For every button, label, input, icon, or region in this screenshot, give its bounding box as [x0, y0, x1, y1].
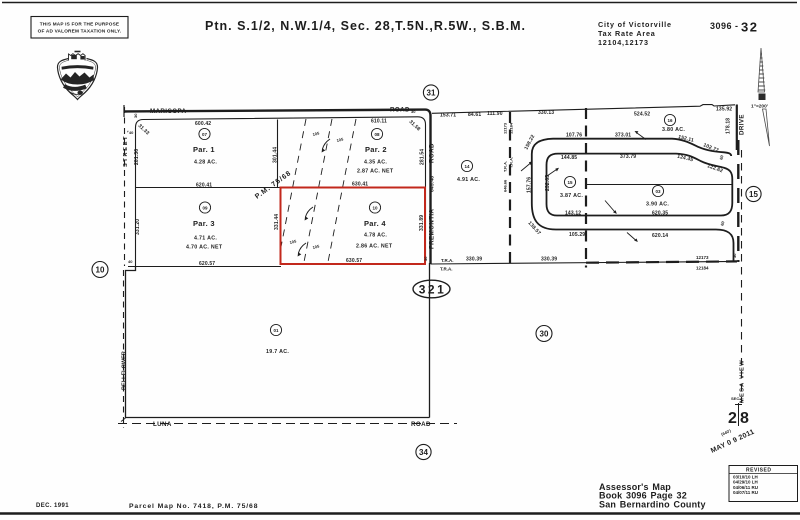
svg-text:111.90: 111.90 — [487, 111, 503, 117]
svg-text:524.52: 524.52 — [634, 112, 650, 118]
svg-text:630.57: 630.57 — [346, 258, 362, 264]
svg-text:32: 32 — [741, 20, 758, 35]
svg-text:STREET: STREET — [123, 135, 129, 167]
svg-text:15: 15 — [749, 190, 758, 199]
svg-text:620.35: 620.35 — [652, 210, 668, 216]
svg-text:31.58: 31.58 — [408, 119, 422, 132]
svg-text:102.77: 102.77 — [702, 142, 719, 154]
svg-text:07: 07 — [202, 132, 208, 137]
svg-text:16: 16 — [667, 118, 673, 123]
svg-text:4.70 AC. NET: 4.70 AC. NET — [186, 245, 223, 251]
svg-text:122.62: 122.62 — [706, 163, 723, 174]
svg-text:646.66: 646.66 — [503, 179, 508, 192]
svg-text:178.18: 178.18 — [726, 118, 732, 134]
svg-text:4.28 AC.: 4.28 AC. — [194, 160, 217, 166]
svg-text:09: 09 — [202, 206, 208, 211]
svg-text:(640'): (640') — [720, 428, 732, 437]
svg-text:Par. 3: Par. 3 — [193, 219, 215, 228]
svg-text:331.89: 331.89 — [419, 215, 425, 231]
svg-text:THIS MAP IS FOR THE PURPOSE: THIS MAP IS FOR THE PURPOSE — [40, 22, 120, 27]
svg-text:144.85: 144.85 — [561, 155, 577, 161]
svg-text:34: 34 — [419, 448, 428, 457]
svg-text:⌜40: ⌜40 — [127, 130, 134, 135]
svg-text:12184: 12184 — [696, 266, 709, 271]
svg-text:04/07/11 RU: 04/07/11 RU — [733, 490, 758, 495]
svg-text:REVISED: REVISED — [746, 468, 771, 474]
svg-text:T.R.A.: T.R.A. — [441, 258, 454, 263]
svg-text:331.20: 331.20 — [135, 219, 141, 235]
svg-text:105: 105 — [289, 238, 297, 245]
svg-text:MAY 0 9 2011: MAY 0 9 2011 — [710, 429, 756, 455]
svg-text:143.12: 143.12 — [565, 210, 581, 216]
svg-text:2.86 AC. NET: 2.86 AC. NET — [356, 244, 393, 250]
svg-text:105.29: 105.29 — [569, 232, 585, 238]
svg-text:LUNA: LUNA — [153, 421, 172, 428]
svg-text:Ptn. S.1/2, N.W.1/4, Sec. 28,T: Ptn. S.1/2, N.W.1/4, Sec. 28,T.5N.,R.5W.… — [205, 19, 526, 33]
svg-text:14: 14 — [464, 164, 470, 169]
svg-text:157.76: 157.76 — [527, 177, 533, 193]
svg-text:107.76: 107.76 — [566, 133, 582, 139]
svg-text:60: 60 — [719, 220, 725, 226]
svg-text:30: 30 — [411, 109, 416, 114]
svg-text:BELLFLOWER: BELLFLOWER — [122, 351, 128, 390]
svg-text:15: 15 — [567, 180, 573, 185]
svg-text:60: 60 — [718, 154, 724, 160]
svg-text:19.7 AC.: 19.7 AC. — [266, 349, 289, 355]
svg-text:30: 30 — [423, 256, 428, 261]
svg-text:331.44: 331.44 — [274, 214, 280, 230]
svg-text:4.91 AC.: 4.91 AC. — [457, 177, 480, 183]
svg-text:4.35 AC.: 4.35 AC. — [364, 160, 387, 166]
svg-text:01: 01 — [273, 328, 279, 333]
svg-text:DRIVE: DRIVE — [739, 114, 746, 135]
svg-text:373.79: 373.79 — [620, 154, 636, 160]
svg-text:30: 30 — [732, 253, 737, 258]
svg-text:T.R.A.: T.R.A. — [440, 267, 453, 272]
svg-text:T.R.A.: T.R.A. — [503, 161, 508, 172]
svg-text:ROAD: ROAD — [411, 421, 431, 428]
svg-text:3.87 AC.: 3.87 AC. — [560, 193, 583, 199]
svg-text:31.33: 31.33 — [137, 123, 151, 136]
svg-text:8: 8 — [740, 410, 749, 427]
svg-text:105: 105 — [312, 243, 320, 250]
svg-text:FREMONTIA: FREMONTIA — [429, 208, 436, 249]
svg-text:12173: 12173 — [503, 122, 508, 134]
svg-text:4.71 AC.: 4.71 AC. — [194, 236, 217, 242]
svg-text:281.36: 281.36 — [134, 149, 140, 165]
svg-text:10: 10 — [372, 206, 378, 211]
svg-text:12173: 12173 — [696, 255, 709, 260]
svg-text:40: 40 — [128, 259, 133, 264]
svg-text:Par. 2: Par. 2 — [365, 145, 387, 154]
svg-text:330.39: 330.39 — [466, 257, 482, 263]
svg-text:DEC. 1991: DEC. 1991 — [36, 503, 69, 509]
svg-text:610.11: 610.11 — [371, 119, 387, 125]
svg-text:3.80 AC.: 3.80 AC. — [662, 127, 685, 133]
svg-text:Par. 4: Par. 4 — [364, 219, 386, 228]
svg-text:T.R.A.: T.R.A. — [509, 157, 514, 168]
svg-text:Parcel Map No. 7418, P.M. 75/6: Parcel Map No. 7418, P.M. 75/68 — [129, 503, 258, 510]
svg-text:301.44: 301.44 — [273, 147, 279, 163]
svg-text:3096 -: 3096 - — [710, 21, 739, 31]
svg-text:12184: 12184 — [509, 122, 514, 134]
svg-text:330.39: 330.39 — [541, 257, 557, 263]
svg-text:373.01: 373.01 — [615, 133, 631, 139]
svg-text:MARICOPA: MARICOPA — [150, 108, 187, 115]
svg-text:158.22: 158.22 — [523, 134, 536, 151]
svg-text:San Bernardino County: San Bernardino County — [599, 500, 706, 510]
svg-text:620.14: 620.14 — [652, 233, 668, 239]
svg-text:105: 105 — [312, 130, 320, 137]
svg-text:3.90 AC.: 3.90 AC. — [646, 202, 669, 208]
svg-text:P.M. 75/68: P.M. 75/68 — [254, 170, 293, 201]
svg-text:630.41: 630.41 — [352, 181, 368, 187]
svg-text:31: 31 — [427, 89, 436, 98]
svg-text:2: 2 — [728, 410, 737, 427]
svg-text:135.92: 135.92 — [716, 107, 732, 113]
svg-text:138.57: 138.57 — [527, 220, 542, 236]
svg-text:ROAD: ROAD — [429, 143, 436, 163]
svg-text:30: 30 — [540, 330, 549, 339]
svg-text:321: 321 — [419, 283, 447, 297]
svg-text:2.87 AC. NET: 2.87 AC. NET — [357, 169, 394, 175]
svg-text:30: 30 — [133, 113, 138, 118]
svg-text:Tax Rate Area: Tax Rate Area — [598, 29, 656, 38]
svg-text:105: 105 — [336, 136, 344, 143]
svg-text:ROAD: ROAD — [390, 107, 410, 114]
svg-text:281.54: 281.54 — [420, 149, 426, 165]
svg-text:4.78 AC.: 4.78 AC. — [364, 233, 387, 239]
svg-text:84.61: 84.61 — [468, 112, 481, 118]
svg-text:12104,12173: 12104,12173 — [598, 38, 649, 47]
svg-text:08: 08 — [374, 132, 380, 137]
svg-text:Par. 1: Par. 1 — [193, 145, 215, 154]
svg-text:10: 10 — [96, 266, 105, 275]
svg-text:232.65: 232.65 — [545, 175, 551, 191]
svg-text:03: 03 — [655, 189, 661, 194]
svg-text:City of Victorville: City of Victorville — [598, 20, 672, 29]
svg-text:153.71: 153.71 — [440, 113, 456, 119]
svg-text:OF AD VALOREM TAXATION ONLY.: OF AD VALOREM TAXATION ONLY. — [38, 29, 122, 34]
svg-text:620.41: 620.41 — [196, 182, 212, 188]
svg-text:124.45: 124.45 — [677, 154, 694, 164]
svg-text:600.42: 600.42 — [195, 121, 211, 127]
svg-text:MESA VIEW: MESA VIEW — [740, 359, 746, 403]
svg-text:330.13: 330.13 — [538, 110, 554, 116]
svg-text:645.48: 645.48 — [430, 176, 436, 192]
svg-text:620.57: 620.57 — [199, 261, 215, 267]
svg-text:SEC.: SEC. — [731, 396, 740, 401]
